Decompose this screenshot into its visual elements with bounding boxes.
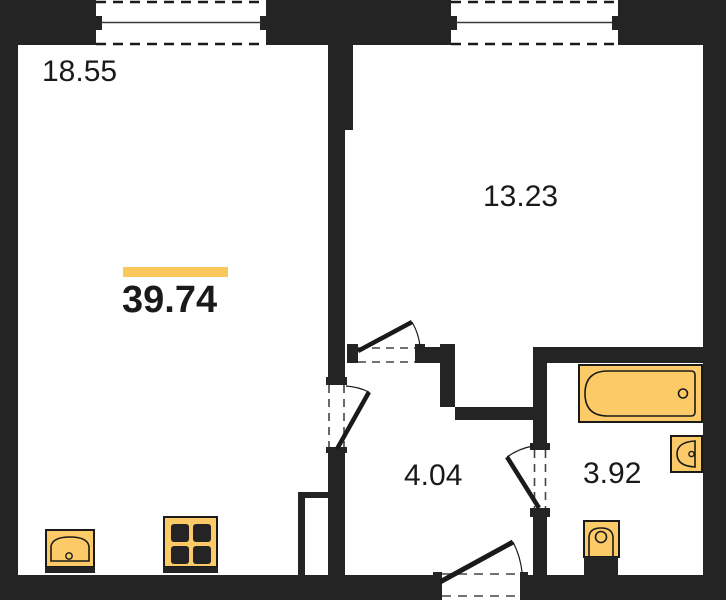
room-area-label-bathroom: 3.92 <box>583 459 641 489</box>
bathtub-icon <box>578 364 703 423</box>
door-swing-icon <box>358 322 420 362</box>
window-icon <box>451 2 618 44</box>
total-area-accent-bar <box>123 267 228 277</box>
washbasin-icon <box>670 435 703 473</box>
door-swing-icon <box>329 385 369 449</box>
door-swing-icon <box>507 446 546 508</box>
door-swing-icon <box>440 542 522 596</box>
stove-icon <box>163 516 218 574</box>
room-area-label-hallway: 4.04 <box>404 461 462 491</box>
toilet-icon <box>583 520 621 576</box>
kitchen-sink-icon <box>45 529 96 574</box>
window-icon <box>96 2 266 44</box>
room-area-label-bedroom: 13.23 <box>483 182 558 212</box>
total-area-label: 39.74 <box>122 281 217 319</box>
floor-plan: 18.55 13.23 4.04 3.92 39.74 <box>0 0 726 600</box>
room-area-label-living: 18.55 <box>42 57 117 87</box>
plan-linework <box>0 0 726 600</box>
